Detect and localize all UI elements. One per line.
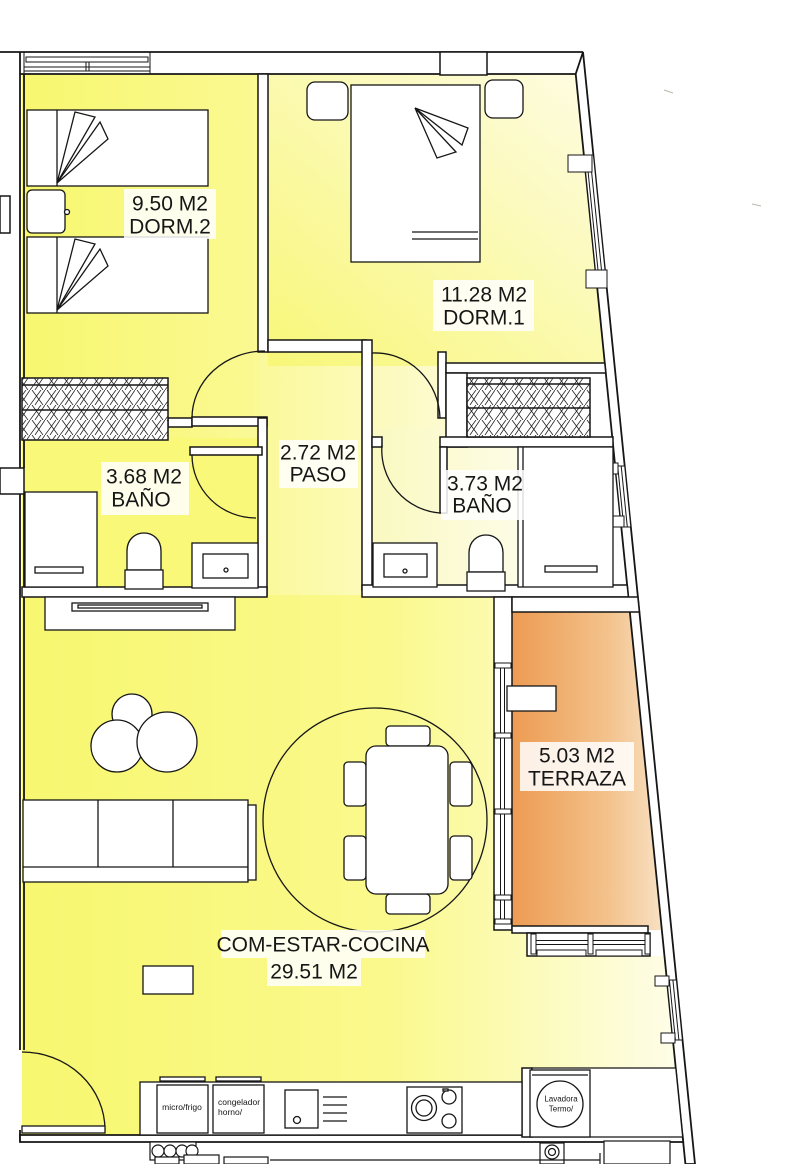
toilet-bano2	[467, 535, 505, 591]
label-dorm1: 11.28 M2 DORM.1	[433, 280, 534, 331]
terraza-ac-unit	[507, 686, 556, 711]
chair-top	[386, 726, 430, 746]
wall-bano2-north	[440, 437, 613, 447]
chair-right-2	[450, 836, 472, 880]
shower-bano1	[25, 492, 97, 587]
bano1-name-label: BAÑO	[111, 488, 171, 512]
dorm2-name-label: DORM.2	[129, 216, 211, 239]
wall-bano2-west-top	[446, 373, 467, 447]
chair-right-1	[450, 762, 472, 806]
horno-label: horno/	[218, 1107, 243, 1117]
chair-bottom	[386, 894, 430, 914]
single-bed-1	[27, 110, 208, 186]
washing-machine	[530, 1070, 590, 1137]
wall-top-pier	[440, 52, 487, 75]
hob	[407, 1087, 462, 1133]
cutoff-box-3	[224, 1157, 268, 1164]
label-dorm2: 9.50 M2 DORM.2	[124, 189, 216, 239]
wall-bano1-east	[258, 418, 267, 595]
paso-name-label: PASO	[290, 464, 347, 487]
sink-bano2	[373, 543, 437, 587]
sofa	[23, 800, 256, 882]
chair-left-2	[344, 836, 366, 880]
rug	[143, 966, 193, 994]
salon-name-label: COM-ESTAR-COCINA	[216, 934, 429, 957]
wall-paso-east	[362, 340, 372, 590]
nightstand-dorm1-right	[485, 80, 523, 118]
toilet-bano1	[125, 533, 163, 589]
termo-label: Termo/	[549, 1105, 574, 1114]
print-artifacts	[664, 90, 761, 206]
bano1-area-label: 3.68 M2	[106, 466, 182, 489]
wall-terraza-north	[512, 597, 639, 612]
wall-dorm2-south	[168, 418, 192, 427]
chair-left-1	[344, 762, 366, 806]
label-terraza: 5.03 M2 TERRAZA	[520, 742, 634, 791]
cutoff-box-4	[604, 1141, 670, 1164]
shower-bano2	[518, 447, 613, 587]
paso-area-label: 2.72 M2	[280, 442, 356, 465]
double-bed	[351, 85, 480, 262]
bano2-area-label: 3.73 M2	[447, 473, 523, 496]
wall-left-stub	[0, 468, 24, 494]
wall-dorm1-south-right	[446, 363, 606, 373]
appliance-door-line-1	[160, 1077, 205, 1081]
label-bano2: 3.73 M2 BAÑO	[441, 470, 529, 520]
bano2-name-label: BAÑO	[452, 494, 512, 518]
cutoff-box-1	[155, 1157, 179, 1164]
dorm1-area-label: 11.28 M2	[441, 284, 527, 307]
nightstand-dorm1-left	[307, 82, 348, 120]
dorm1-name-label: DORM.1	[443, 307, 525, 330]
salon-area-label: 29.51 M2	[270, 961, 358, 984]
wall-terraza-south	[512, 926, 648, 933]
dining-table	[366, 746, 448, 894]
window-dorm2-top	[24, 52, 150, 74]
dorm2-area-label: 9.50 M2	[132, 193, 208, 216]
door-panel-entrance	[22, 1126, 105, 1133]
lavadora-label: Lavadora	[544, 1095, 578, 1104]
label-bano1: 3.68 M2 BAÑO	[101, 462, 189, 515]
wardrobe-dorm1	[467, 378, 590, 437]
wall-left-notch	[0, 196, 10, 233]
tv-cabinet	[45, 597, 235, 630]
wall-living-terraza	[494, 597, 512, 930]
floor-plan: 9.50 M2 DORM.2 11.28 M2 DORM.1 2.72 M2 P…	[0, 0, 804, 1164]
nightstand-dorm2	[27, 190, 70, 233]
cutoff-box-2	[184, 1155, 219, 1164]
label-paso: 2.72 M2 PASO	[279, 440, 358, 488]
appliance-door-line-2	[216, 1077, 261, 1081]
wall-dorm1-south	[268, 340, 366, 352]
wall-dorm-divider	[258, 74, 268, 352]
single-bed-2	[27, 237, 208, 313]
terraza-name-label: TERRAZA	[528, 768, 626, 791]
micro-frigo-label: micro/frigo	[162, 1102, 202, 1112]
wall-bano1-north	[190, 447, 262, 455]
wall-bano2-cap	[372, 437, 382, 447]
drain-box	[540, 1143, 564, 1164]
terraza-area-label: 5.03 M2	[539, 745, 615, 768]
sink-bano1	[192, 543, 258, 588]
wardrobe-dorm2	[22, 378, 168, 440]
floor-plan-page: 9.50 M2 DORM.2 11.28 M2 DORM.1 2.72 M2 P…	[0, 0, 804, 1164]
door-panel-dorm2	[192, 417, 267, 426]
congelador-label: congelador	[218, 1097, 260, 1107]
